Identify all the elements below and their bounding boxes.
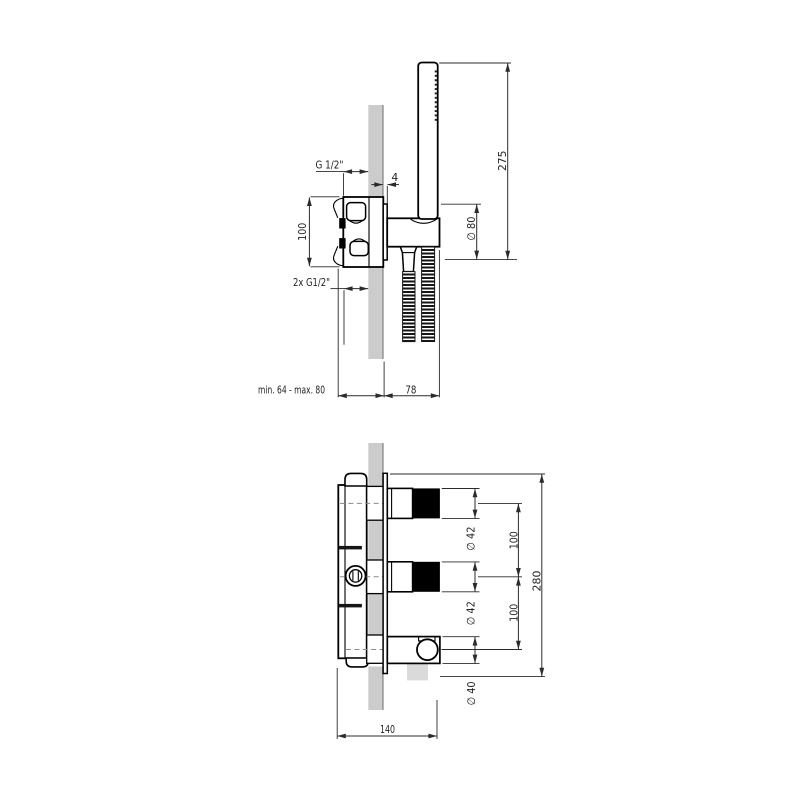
dim-label-2xg12: 2x G1/2" <box>293 276 330 289</box>
dim-label-min-max: min. 64 - max. 80 <box>258 383 325 396</box>
outlet-swivel <box>417 639 438 660</box>
technical-drawing-page: G 1/2" 4 100 2x G1/2" <box>0 0 800 800</box>
dim-label-140: 140 <box>380 723 395 736</box>
lower-knob <box>387 562 440 592</box>
upper-knob <box>387 488 440 518</box>
dim-label-g12: G 1/2" <box>316 158 344 171</box>
clamp-block-2 <box>339 238 345 248</box>
mounting-tab-1 <box>339 546 362 550</box>
dim-label-100-top-view: 100 <box>296 223 309 241</box>
dim-label-275: 275 <box>496 151 509 172</box>
inlet-fitting-2 <box>350 241 368 255</box>
inlet-fitting-1 <box>347 203 366 221</box>
shower-technical-drawing: G 1/2" 4 100 2x G1/2" <box>0 0 800 800</box>
dim-label-dia40: ∅ 40 <box>465 681 478 705</box>
dim-label-dia42-upper: ∅ 42 <box>464 527 477 551</box>
dim-label-100-lower: 100 <box>508 604 521 622</box>
hose-ghost <box>407 663 428 680</box>
hose-outlet <box>387 637 440 664</box>
body-dome-top <box>345 473 367 486</box>
dim-label-280: 280 <box>531 570 544 591</box>
hose-connector <box>400 247 416 272</box>
canvas-background <box>0 0 800 800</box>
dim-label-dia42-lower: ∅ 42 <box>464 601 477 625</box>
shower-hose-back <box>422 247 435 342</box>
upper-knob-grip <box>413 488 440 518</box>
dim-label-4: 4 <box>391 171 398 184</box>
handshower-wand <box>418 63 438 220</box>
mounting-tab-2 <box>339 604 362 608</box>
clamp-block-1 <box>339 218 345 228</box>
shower-hose-front <box>403 272 415 342</box>
dim-label-dia80: ∅ 80 <box>465 216 478 240</box>
adjustment-screw <box>346 566 366 586</box>
body-dome-bottom <box>346 658 368 667</box>
dim-label-100-upper: 100 <box>508 531 521 549</box>
dim-label-78: 78 <box>405 383 416 396</box>
mixer-body <box>339 197 383 267</box>
lower-knob-grip <box>413 562 440 592</box>
shower-holder <box>387 218 439 246</box>
